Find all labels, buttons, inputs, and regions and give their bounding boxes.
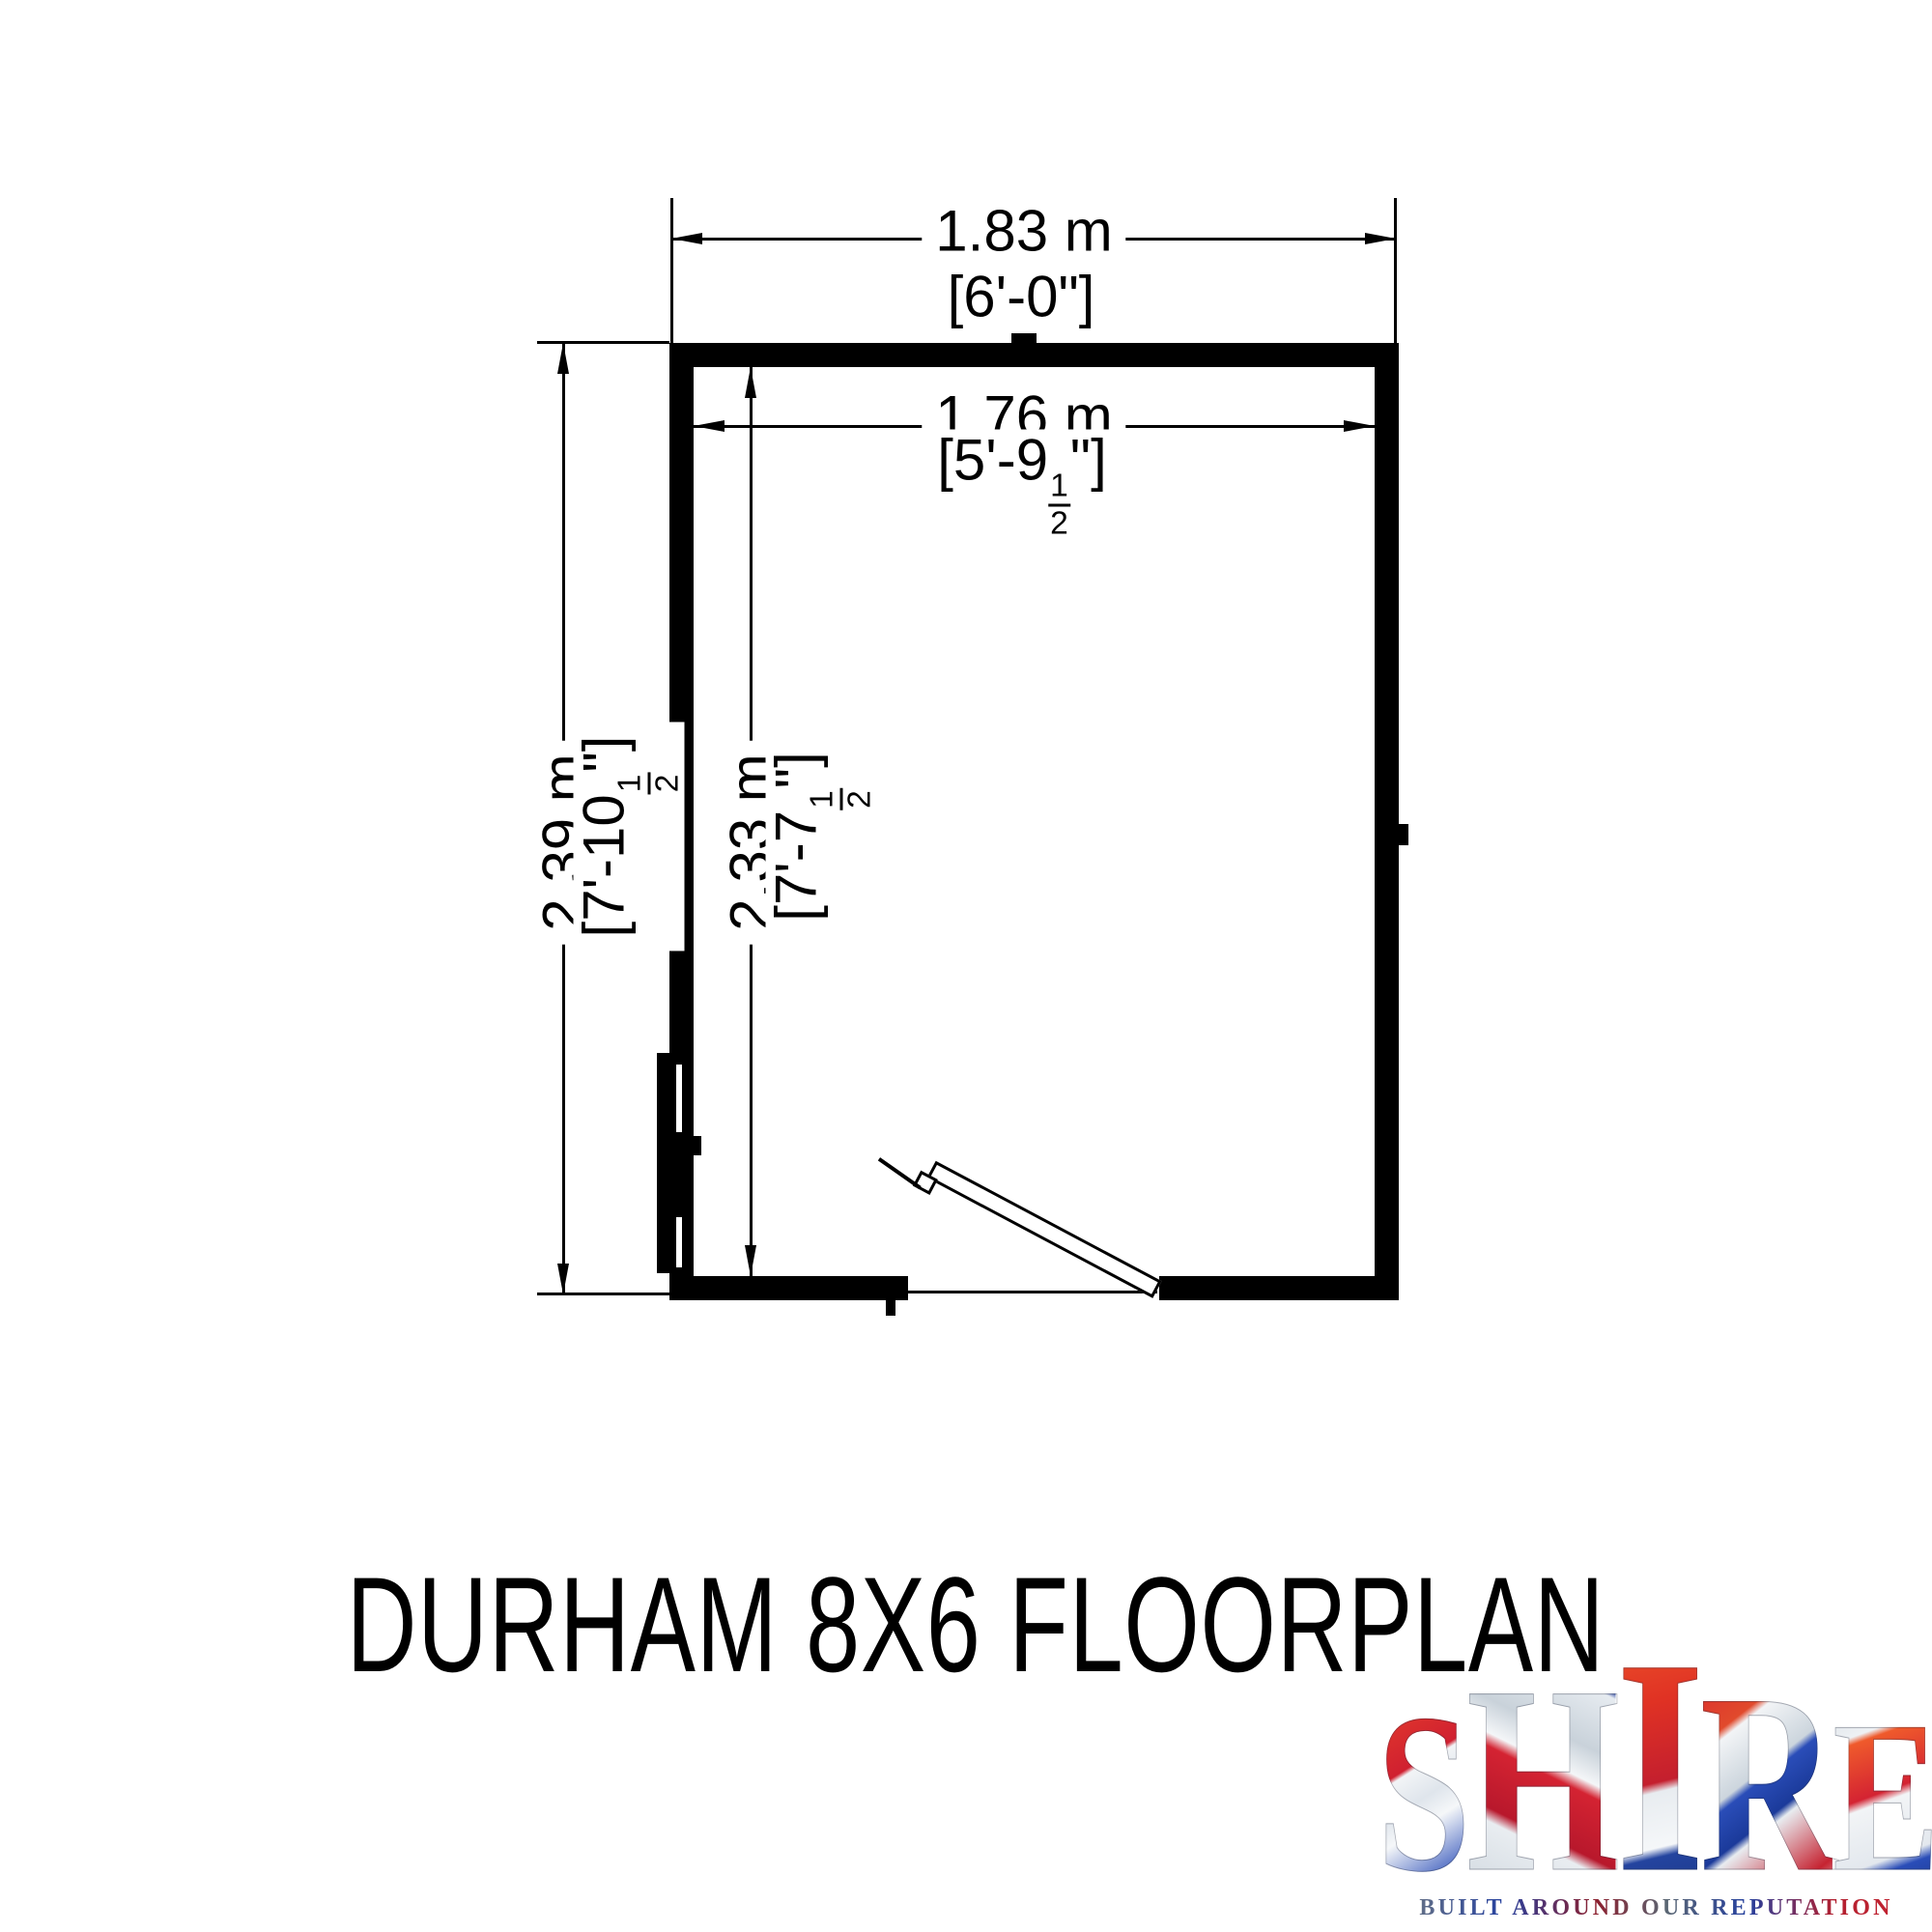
dim-width-outer-arrowhead-left xyxy=(671,233,702,244)
dim-height-outer-arrowhead-down xyxy=(557,1264,569,1294)
dim-height-inner-imperial-suffix: "] xyxy=(764,752,829,788)
wall-bottom-right xyxy=(1159,1276,1399,1300)
window-left-mullion xyxy=(694,1136,701,1155)
wall-right xyxy=(1375,343,1399,1300)
dim-height-inner-imperial-prefix: [7'-7 xyxy=(764,810,829,922)
door-threshold xyxy=(908,1291,1157,1293)
shire-logo: SHIRE BUILT AROUND OUR REPUTATION xyxy=(1403,1612,1910,1921)
wall-top xyxy=(669,343,1399,367)
fraction-half: 12 xyxy=(806,788,877,810)
panel-joint-top xyxy=(1011,333,1037,345)
door-jamb-tick xyxy=(886,1300,895,1316)
window-left-glass-bottom xyxy=(676,1217,682,1267)
dim-width-outer-ext-right xyxy=(1394,198,1397,343)
fraction-half: 12 xyxy=(1048,469,1070,541)
dim-width-outer-arrowhead-right xyxy=(1365,233,1396,244)
shire-logo-wordmark: SHIRE xyxy=(1468,1612,1844,1919)
dim-width-inner-imperial-prefix: [5'-9 xyxy=(937,428,1048,493)
logo-letter-e: E xyxy=(1833,1689,1932,1905)
dim-width-inner-arrowhead-right xyxy=(1344,420,1375,432)
panel-joint-right xyxy=(1397,824,1408,845)
door-leaf xyxy=(926,1161,1161,1298)
floorplan-page: 1.83 m [6'-0"] 1.76 m [5'-912"] 2.39 m [… xyxy=(0,0,1932,1932)
dim-width-outer-ext-left xyxy=(670,198,673,343)
window-left-frame xyxy=(657,1053,694,1273)
dim-width-outer-metric: 1.83 m xyxy=(922,201,1125,264)
dim-width-inner-arrowhead-left xyxy=(694,420,724,432)
dim-height-outer-imperial-suffix: "] xyxy=(572,736,637,773)
dim-height-outer-arrowhead-up xyxy=(557,343,569,374)
logo-letter-s: S xyxy=(1378,1680,1466,1907)
dim-height-inner-imperial: [7'-712"] xyxy=(766,738,877,935)
fraction-half: 12 xyxy=(613,773,685,795)
dim-height-inner-arrowhead-down xyxy=(745,1245,756,1276)
dim-height-outer-imperial: [7'-1012"] xyxy=(574,723,685,952)
dim-width-outer-imperial: [6'-0"] xyxy=(934,267,1109,329)
window-left-glass-top xyxy=(676,1065,682,1132)
dim-height-outer-imperial-prefix: [7'-10 xyxy=(572,794,637,937)
logo-letter-i: I xyxy=(1616,1612,1700,1919)
dim-width-inner-imperial-suffix: "] xyxy=(1070,428,1107,493)
wall-bottom-left xyxy=(669,1276,908,1300)
door-edge-line xyxy=(878,1157,922,1189)
logo-letter-r: R xyxy=(1700,1656,1833,1912)
logo-letter-h: H xyxy=(1466,1645,1616,1913)
dim-height-inner-arrowhead-up xyxy=(745,367,756,398)
dim-width-inner-imperial: [5'-912"] xyxy=(923,430,1121,541)
